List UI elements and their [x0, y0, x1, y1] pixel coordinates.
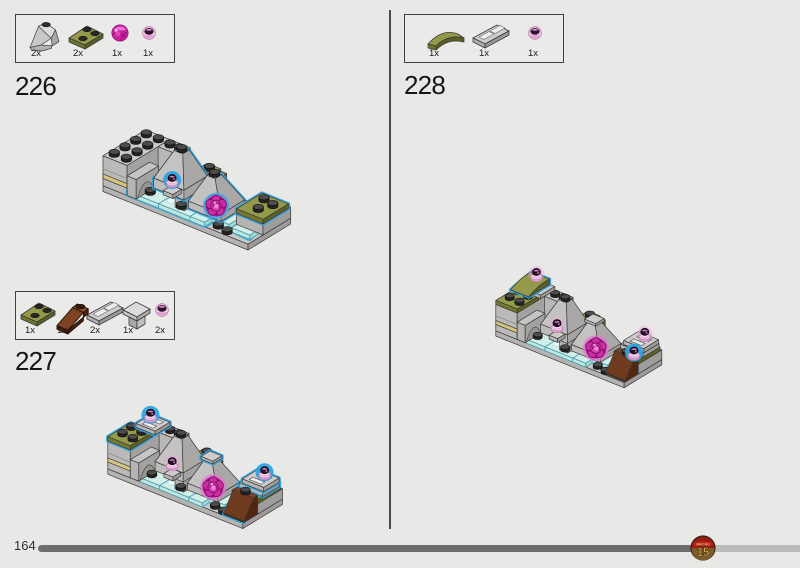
svg-text:1x: 1x: [112, 48, 122, 59]
svg-text:1x: 1x: [25, 325, 35, 336]
svg-text:1x: 1x: [123, 325, 133, 336]
svg-text:2x: 2x: [31, 48, 41, 59]
svg-text:2x: 2x: [73, 48, 83, 59]
svg-text:1x: 1x: [429, 48, 439, 59]
svg-text:1x: 1x: [528, 48, 538, 59]
svg-text:1x: 1x: [479, 48, 489, 59]
svg-text:2x: 2x: [90, 325, 100, 336]
svg-text:2x: 2x: [155, 325, 165, 336]
svg-text:1x: 1x: [57, 325, 67, 336]
svg-text:1x: 1x: [143, 48, 153, 59]
svg-text:MACHU: MACHU: [696, 543, 710, 547]
svg-text:15: 15: [697, 547, 710, 559]
